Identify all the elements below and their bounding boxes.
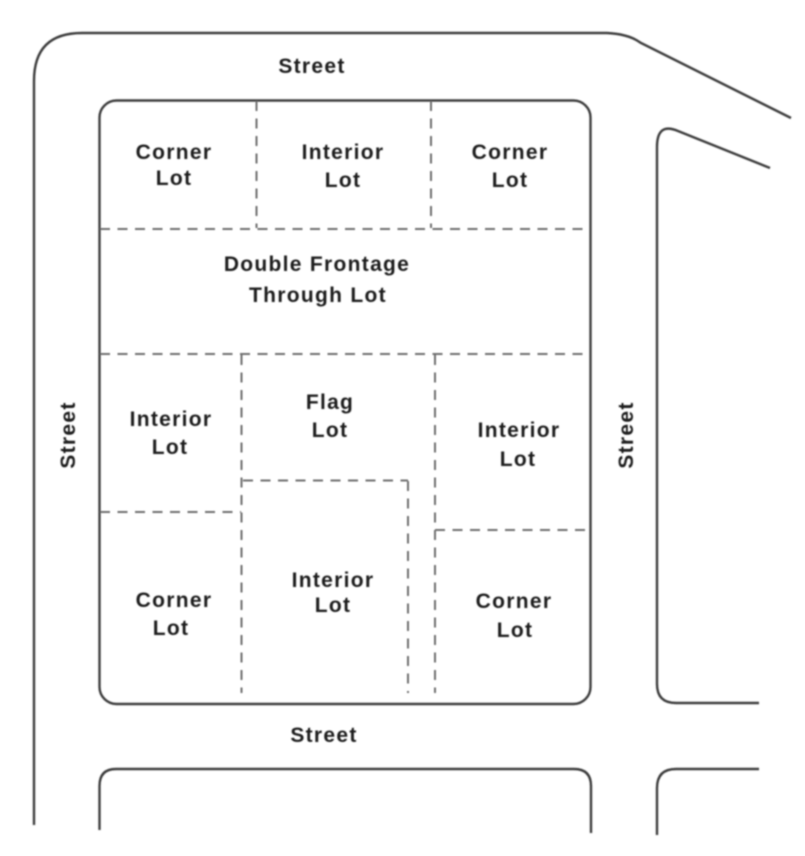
svg-text:Corner: Corner: [136, 141, 213, 164]
svg-text:Street: Street: [278, 55, 345, 78]
svg-text:Lot: Lot: [497, 619, 534, 642]
svg-text:Lot: Lot: [315, 594, 352, 617]
svg-text:Interior: Interior: [302, 141, 385, 164]
svg-text:Flag: Flag: [306, 391, 354, 414]
svg-text:Interior: Interior: [292, 569, 375, 592]
svg-text:Lot: Lot: [152, 436, 189, 459]
svg-text:Lot: Lot: [492, 169, 529, 192]
svg-text:Double Frontage: Double Frontage: [224, 253, 410, 276]
svg-text:Interior: Interior: [478, 419, 561, 442]
svg-text:Street: Street: [615, 401, 638, 468]
svg-text:Through Lot: Through Lot: [249, 284, 387, 307]
svg-text:Lot: Lot: [325, 169, 362, 192]
svg-text:Lot: Lot: [153, 617, 190, 640]
svg-text:Lot: Lot: [156, 167, 193, 190]
svg-text:Street: Street: [57, 401, 80, 468]
svg-text:Street: Street: [290, 724, 357, 747]
svg-text:Corner: Corner: [472, 141, 549, 164]
svg-text:Corner: Corner: [476, 590, 553, 613]
svg-text:Lot: Lot: [500, 448, 537, 471]
svg-text:Lot: Lot: [312, 419, 349, 442]
svg-text:Interior: Interior: [130, 408, 213, 431]
svg-text:Corner: Corner: [136, 589, 213, 612]
